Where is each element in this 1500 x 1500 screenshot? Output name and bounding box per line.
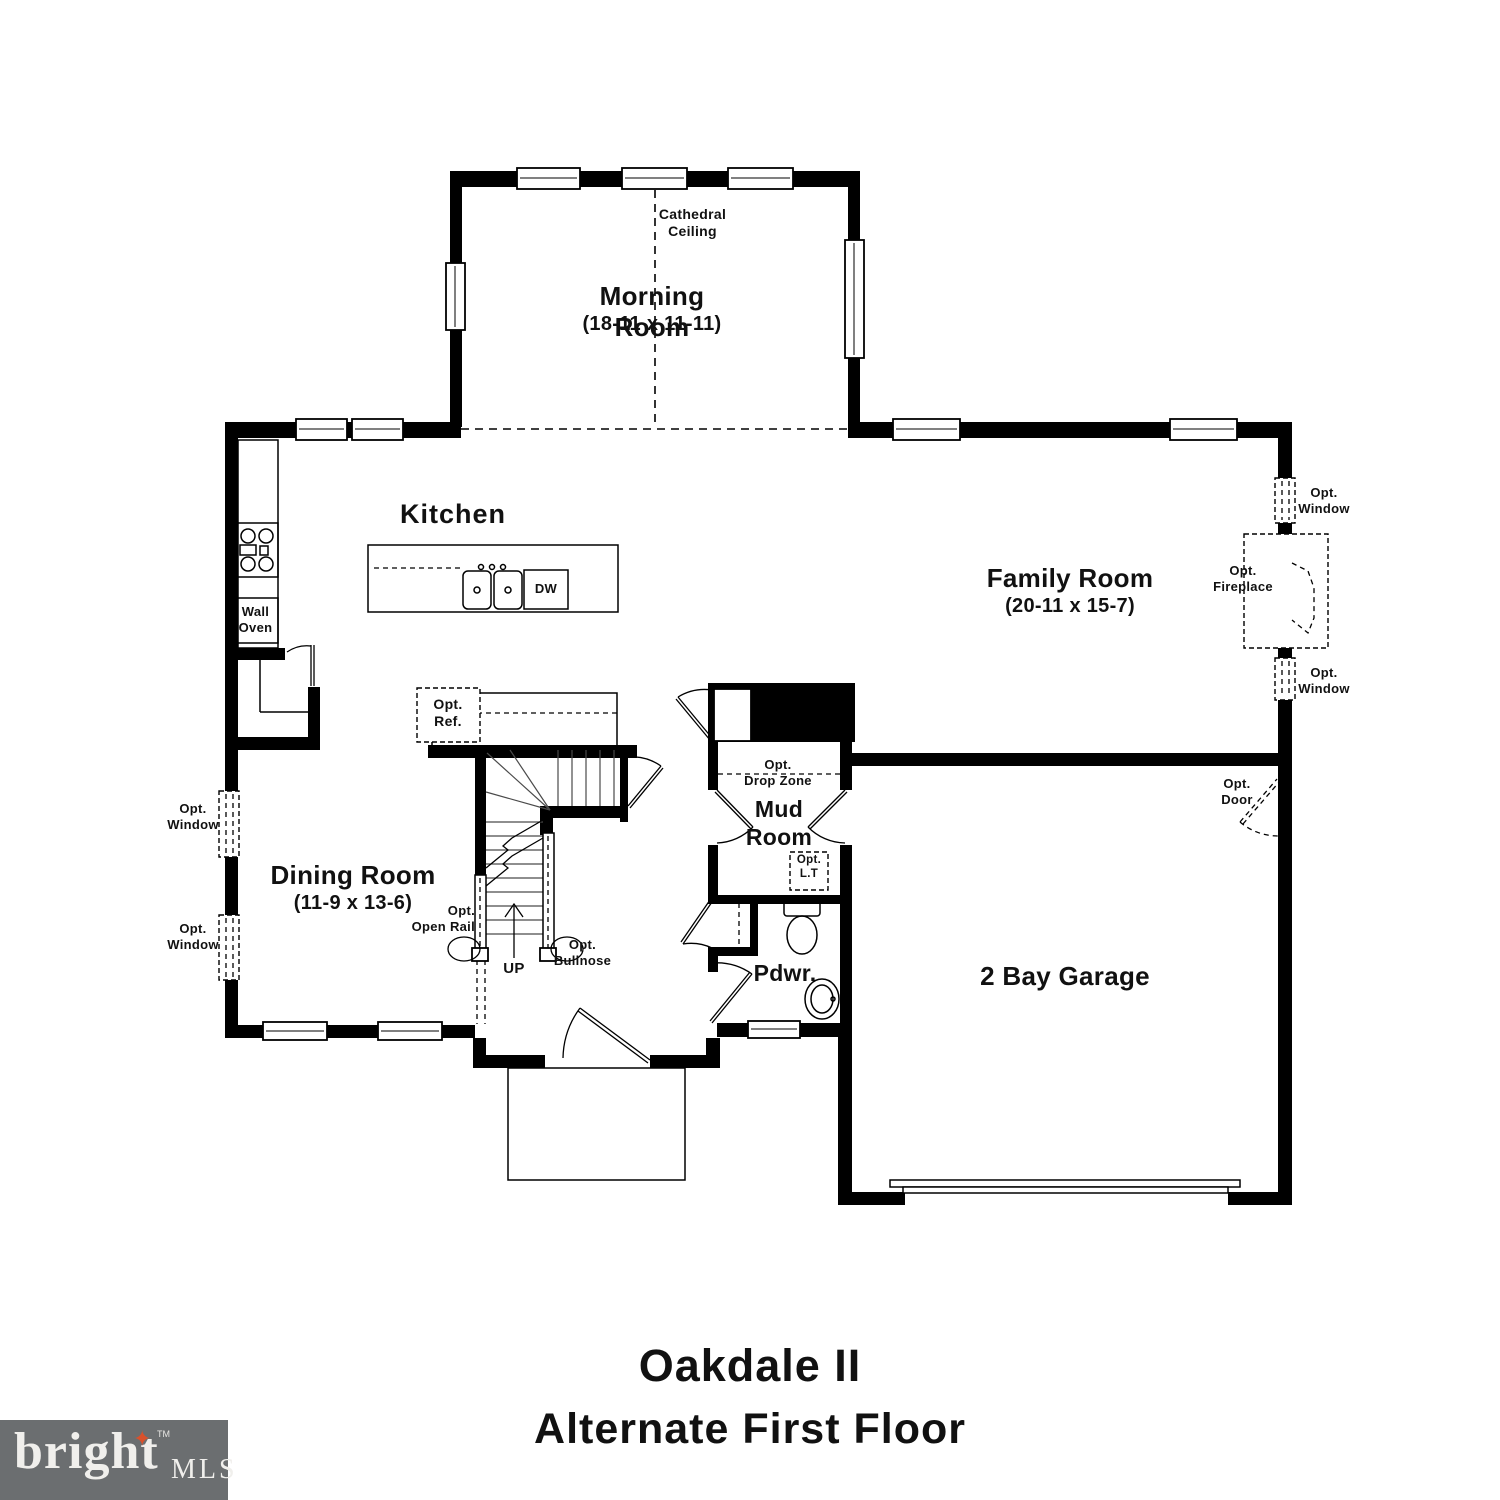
window xyxy=(748,1021,800,1038)
up-label: UP xyxy=(494,960,534,978)
plan-title: Oakdale II xyxy=(0,1340,1500,1392)
stair-left-wall xyxy=(475,748,486,875)
entry-closet-door xyxy=(676,689,712,740)
opt-door-label: Opt. Door xyxy=(1205,776,1269,807)
star-icon: ✦ xyxy=(133,1426,151,1452)
sink-basin xyxy=(494,571,522,609)
dining-room-label: Dining Room xyxy=(268,860,438,891)
pantry-shelves xyxy=(260,660,308,712)
family-room-dims: (20-11 x 15-7) xyxy=(985,594,1155,618)
front-wall-left xyxy=(473,1055,545,1068)
bright-mls-logo: bright ✦ TM MLS xyxy=(0,1420,228,1500)
window xyxy=(845,240,864,358)
floor-plan: Morning Room (18-11 x 11-11) Cathedral C… xyxy=(0,0,1500,1500)
family-room-label: Family Room xyxy=(985,563,1155,594)
mud-left-wall-lower xyxy=(708,845,718,895)
kitchen-label: Kitchen xyxy=(393,498,513,530)
window xyxy=(1170,419,1237,440)
mud-bottom-wall xyxy=(708,895,852,904)
pantry-right-wall xyxy=(308,687,320,742)
opt-open-rail-label: Opt. Open Rail xyxy=(365,903,475,934)
opt-ref-label: Opt. Ref. xyxy=(418,696,478,730)
walls xyxy=(225,171,1292,1205)
stair-mid-wall xyxy=(540,806,628,818)
window xyxy=(728,168,793,189)
opt-window-label: Opt. Window xyxy=(1294,665,1354,696)
garage-bottom-wall-right xyxy=(1228,1192,1292,1205)
dining-top-stub-wall xyxy=(225,737,320,750)
stair-landing-right-wall xyxy=(620,750,628,822)
toilet xyxy=(784,901,820,954)
window xyxy=(263,1022,327,1040)
window xyxy=(622,168,687,189)
morning-room-dims: (18-11 x 11-11) xyxy=(562,312,742,336)
sink-basin xyxy=(463,571,491,609)
opt-window-label: Opt. Window xyxy=(160,801,226,832)
garage-door-header xyxy=(890,1180,1240,1187)
window xyxy=(296,419,347,440)
pantry-top-wall xyxy=(225,648,285,660)
foyer-closet-door xyxy=(681,900,712,948)
opt-window-label: Opt. Window xyxy=(1294,485,1354,516)
garage-right-wall xyxy=(1278,753,1292,1205)
floor-plan-drawing xyxy=(0,0,1500,1500)
garage-top-wall xyxy=(852,753,1292,766)
window xyxy=(378,1022,442,1040)
window xyxy=(352,419,403,440)
opt-lt-label: Opt. L.T xyxy=(790,854,828,882)
window xyxy=(893,419,960,440)
front-door xyxy=(563,1008,650,1063)
pantry-door xyxy=(287,645,314,686)
cooktop xyxy=(236,523,278,577)
garage-door-panel xyxy=(903,1187,1228,1193)
dishwasher-label: DW xyxy=(530,581,562,597)
front-stoop xyxy=(508,1068,685,1180)
foyer-closet-right-wall xyxy=(750,895,758,956)
optional-window xyxy=(1275,658,1295,700)
opt-bullnose-label: Opt. Bullnose xyxy=(540,937,625,968)
window xyxy=(446,263,465,330)
optional-window xyxy=(1275,478,1295,523)
pdwr-left-wall xyxy=(708,956,718,972)
entry-cabinet xyxy=(714,689,751,741)
opt-window-label: Opt. Window xyxy=(160,921,226,952)
cathedral-ceiling-label: Cathedral Ceiling xyxy=(650,206,735,240)
window xyxy=(517,168,580,189)
stair-landing-door xyxy=(628,757,663,808)
wall-oven-label: Wall Oven xyxy=(233,604,278,635)
foyer-step-right xyxy=(706,1038,720,1068)
kitchen-island xyxy=(368,545,618,612)
foyer-closet-bottom-wall xyxy=(708,947,758,956)
logo-tm: TM xyxy=(157,1429,170,1439)
opt-drop-zone-label: Opt. Drop Zone xyxy=(714,757,842,788)
garage-label: 2 Bay Garage xyxy=(980,961,1150,992)
garage-left-wall xyxy=(838,1036,852,1205)
opt-fireplace-label: Opt. Fireplace xyxy=(1203,563,1283,594)
stair-break-marks xyxy=(486,820,543,886)
mud-room-label: Mud Room xyxy=(736,796,822,851)
logo-mls-text: MLS xyxy=(171,1454,238,1486)
up-arrow xyxy=(505,904,523,958)
pdwr-label: Pdwr. xyxy=(750,960,820,988)
mud-right-wall-lower xyxy=(840,845,852,1036)
